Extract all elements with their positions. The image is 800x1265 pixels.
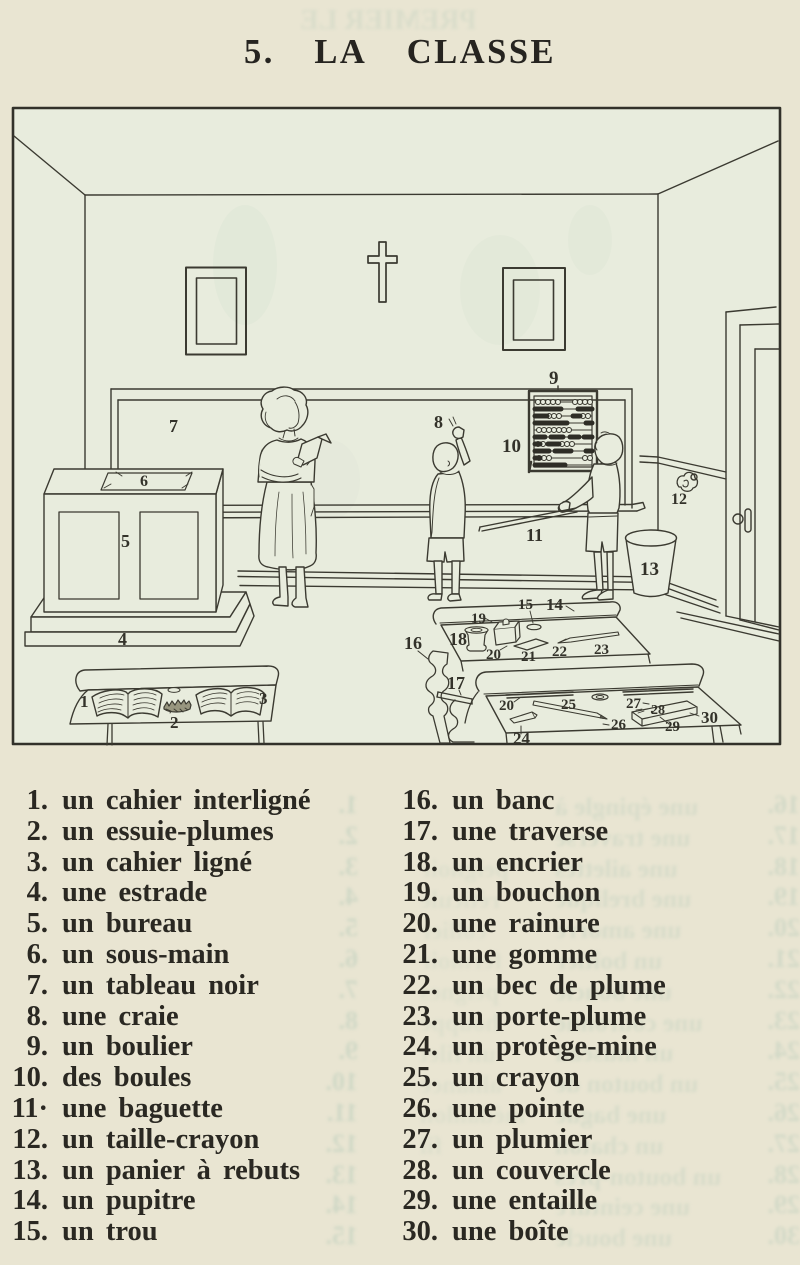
svg-text:13: 13 (640, 559, 659, 580)
svg-text:9: 9 (549, 368, 559, 389)
svg-text:27: 27 (626, 696, 642, 712)
svg-text:19: 19 (471, 611, 486, 627)
svg-text:2: 2 (170, 713, 179, 732)
svg-text:21: 21 (521, 649, 536, 665)
svg-text:16: 16 (404, 633, 422, 653)
svg-text:7: 7 (169, 416, 178, 436)
svg-text:5: 5 (121, 531, 130, 551)
svg-text:10: 10 (502, 436, 521, 457)
svg-text:3: 3 (259, 689, 268, 708)
svg-text:1: 1 (80, 692, 89, 711)
svg-text:17: 17 (447, 673, 465, 693)
svg-text:15: 15 (518, 597, 533, 613)
svg-text:30: 30 (701, 708, 718, 727)
svg-text:6: 6 (140, 473, 148, 490)
svg-text:23: 23 (594, 642, 609, 658)
svg-text:11: 11 (526, 525, 543, 545)
svg-text:18: 18 (449, 629, 467, 649)
svg-text:14: 14 (546, 595, 564, 614)
svg-text:29: 29 (665, 719, 680, 735)
svg-text:25: 25 (561, 697, 576, 713)
svg-text:28: 28 (651, 703, 665, 718)
svg-text:22: 22 (552, 644, 567, 660)
svg-text:8: 8 (434, 412, 443, 432)
svg-text:24: 24 (513, 729, 531, 748)
svg-text:12: 12 (671, 491, 687, 508)
svg-text:20: 20 (486, 647, 501, 663)
svg-text:4: 4 (118, 629, 127, 649)
svg-text:26: 26 (611, 717, 627, 733)
svg-text:20: 20 (499, 698, 514, 714)
